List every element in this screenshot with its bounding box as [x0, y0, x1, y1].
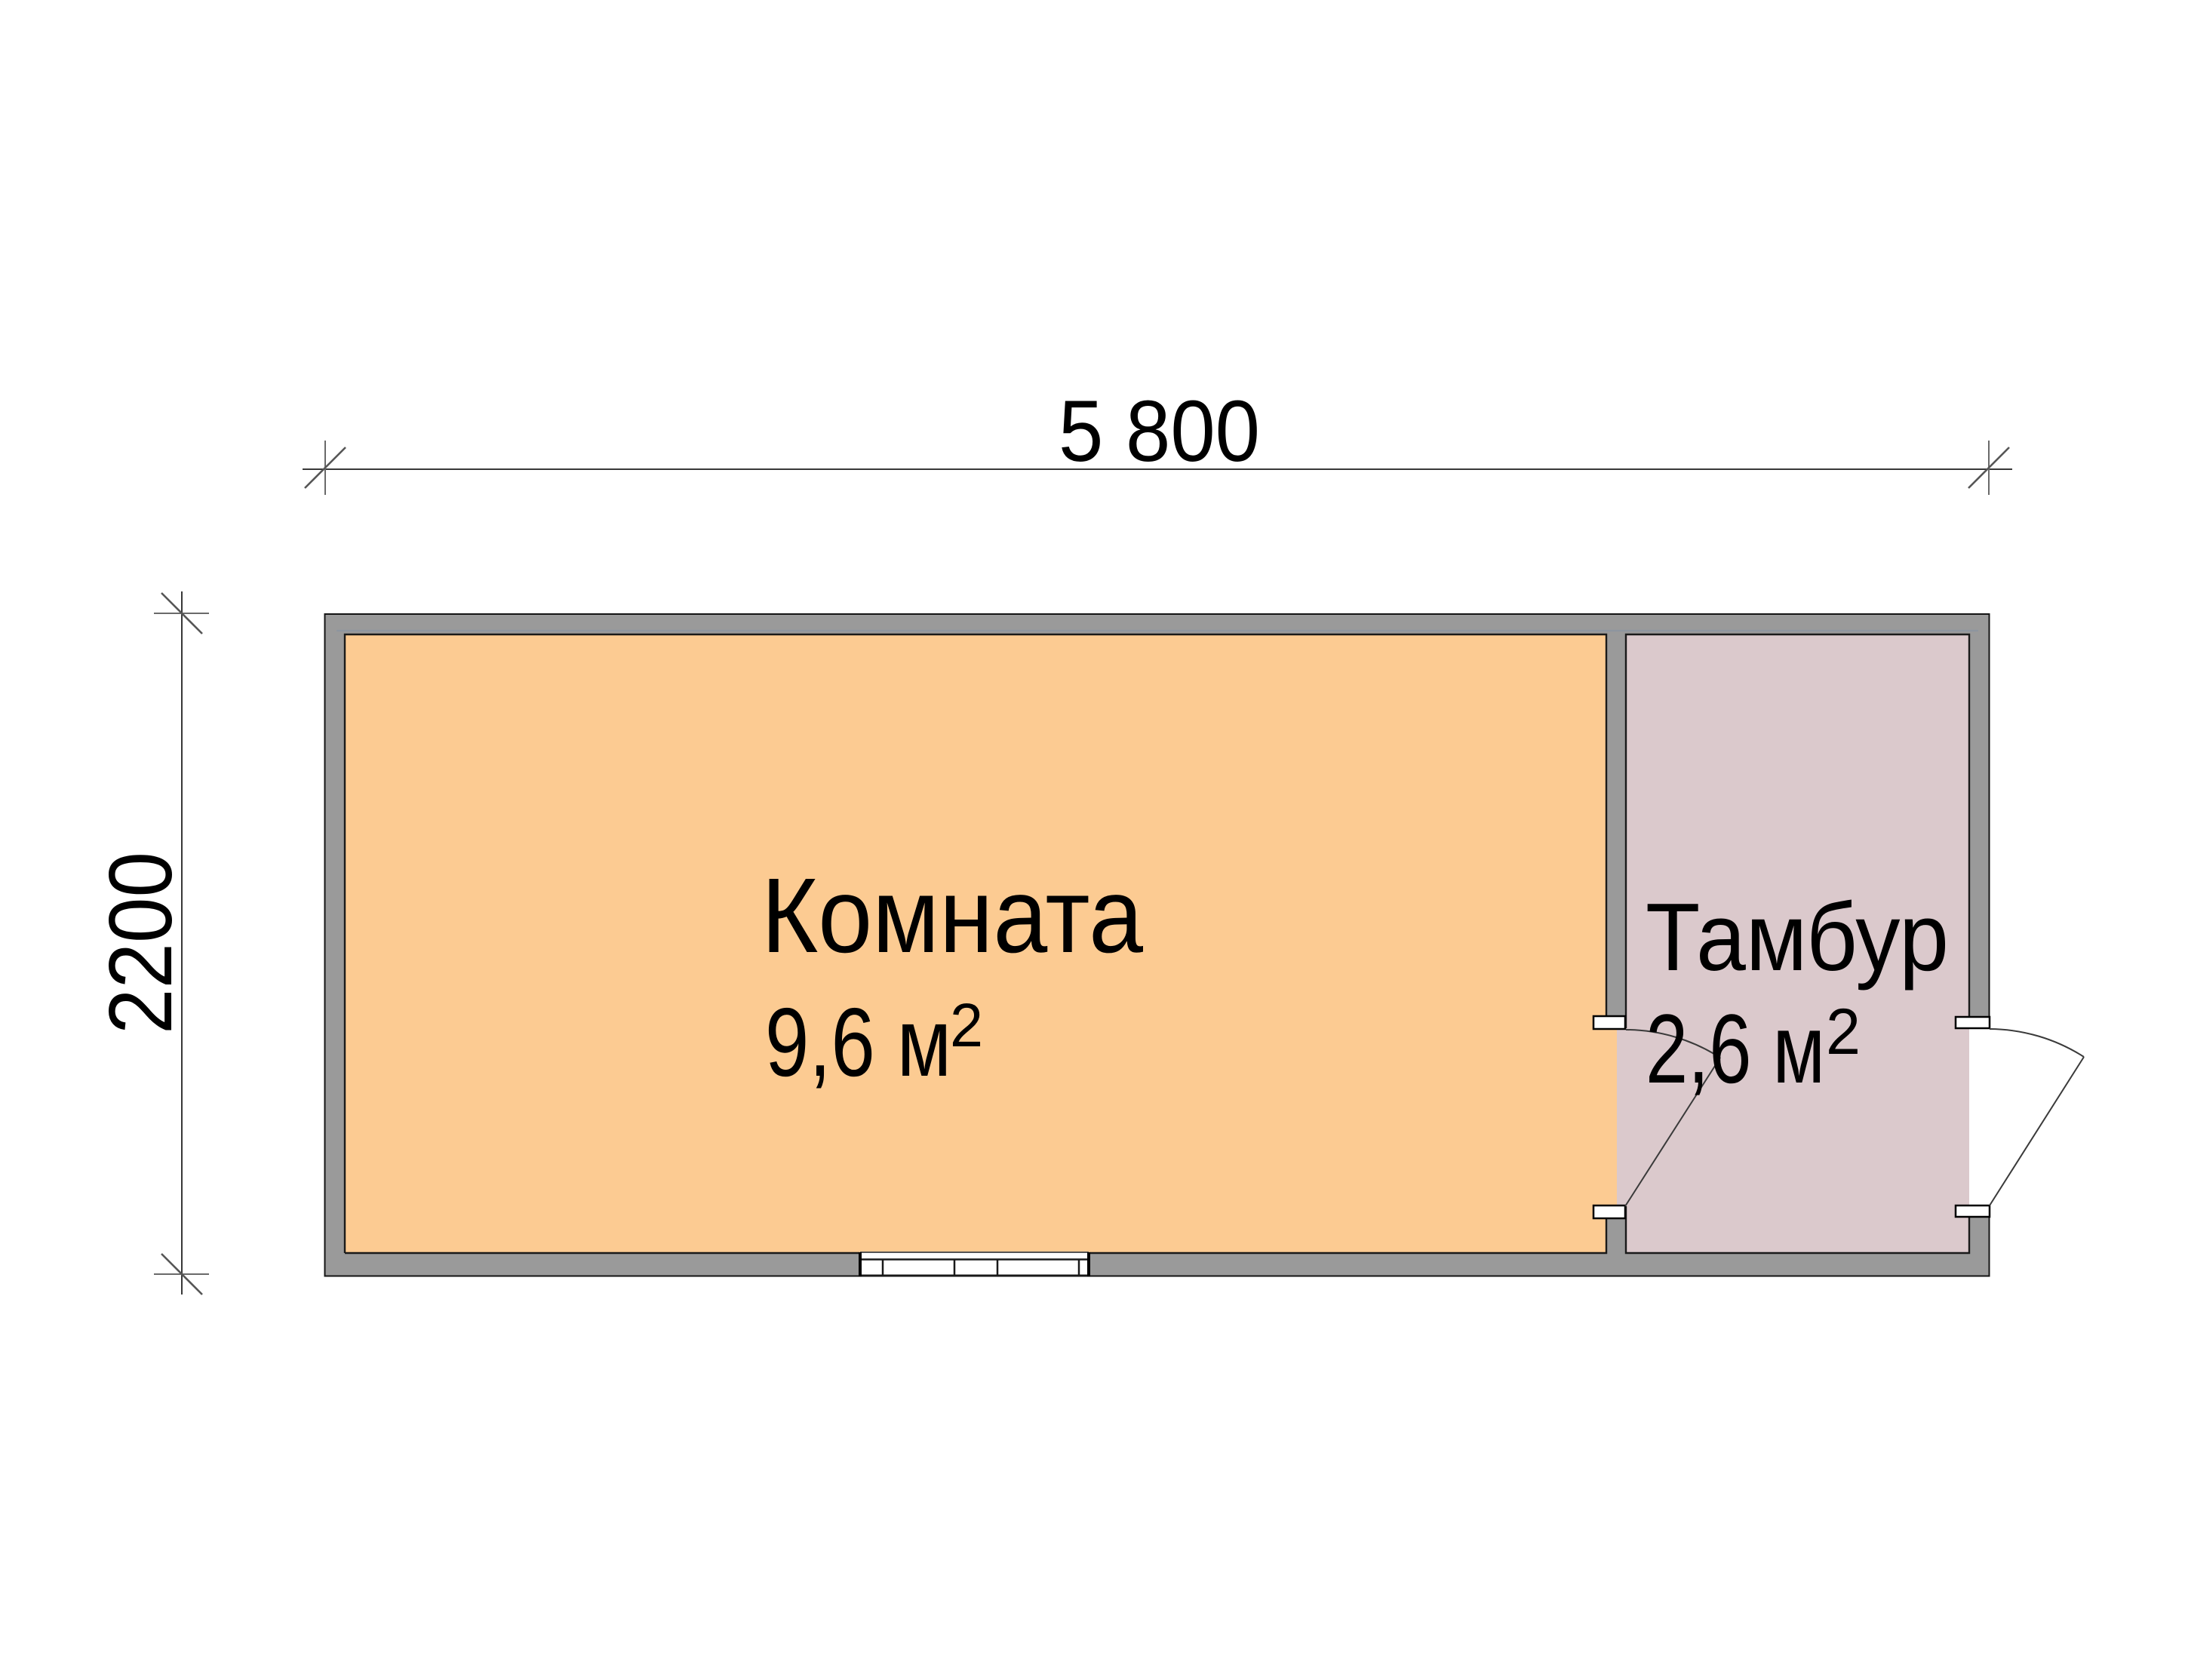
- svg-text:Комната: Комната: [761, 855, 1144, 975]
- svg-text:2200: 2200: [91, 852, 191, 1034]
- svg-text:5 800: 5 800: [1059, 383, 1260, 480]
- svg-text:2: 2: [1826, 996, 1861, 1068]
- svg-text:2: 2: [950, 991, 983, 1060]
- svg-text:2,6 м: 2,6 м: [1646, 994, 1825, 1104]
- svg-text:Тамбур: Тамбур: [1646, 883, 1949, 990]
- svg-text:9,6 м: 9,6 м: [765, 988, 951, 1097]
